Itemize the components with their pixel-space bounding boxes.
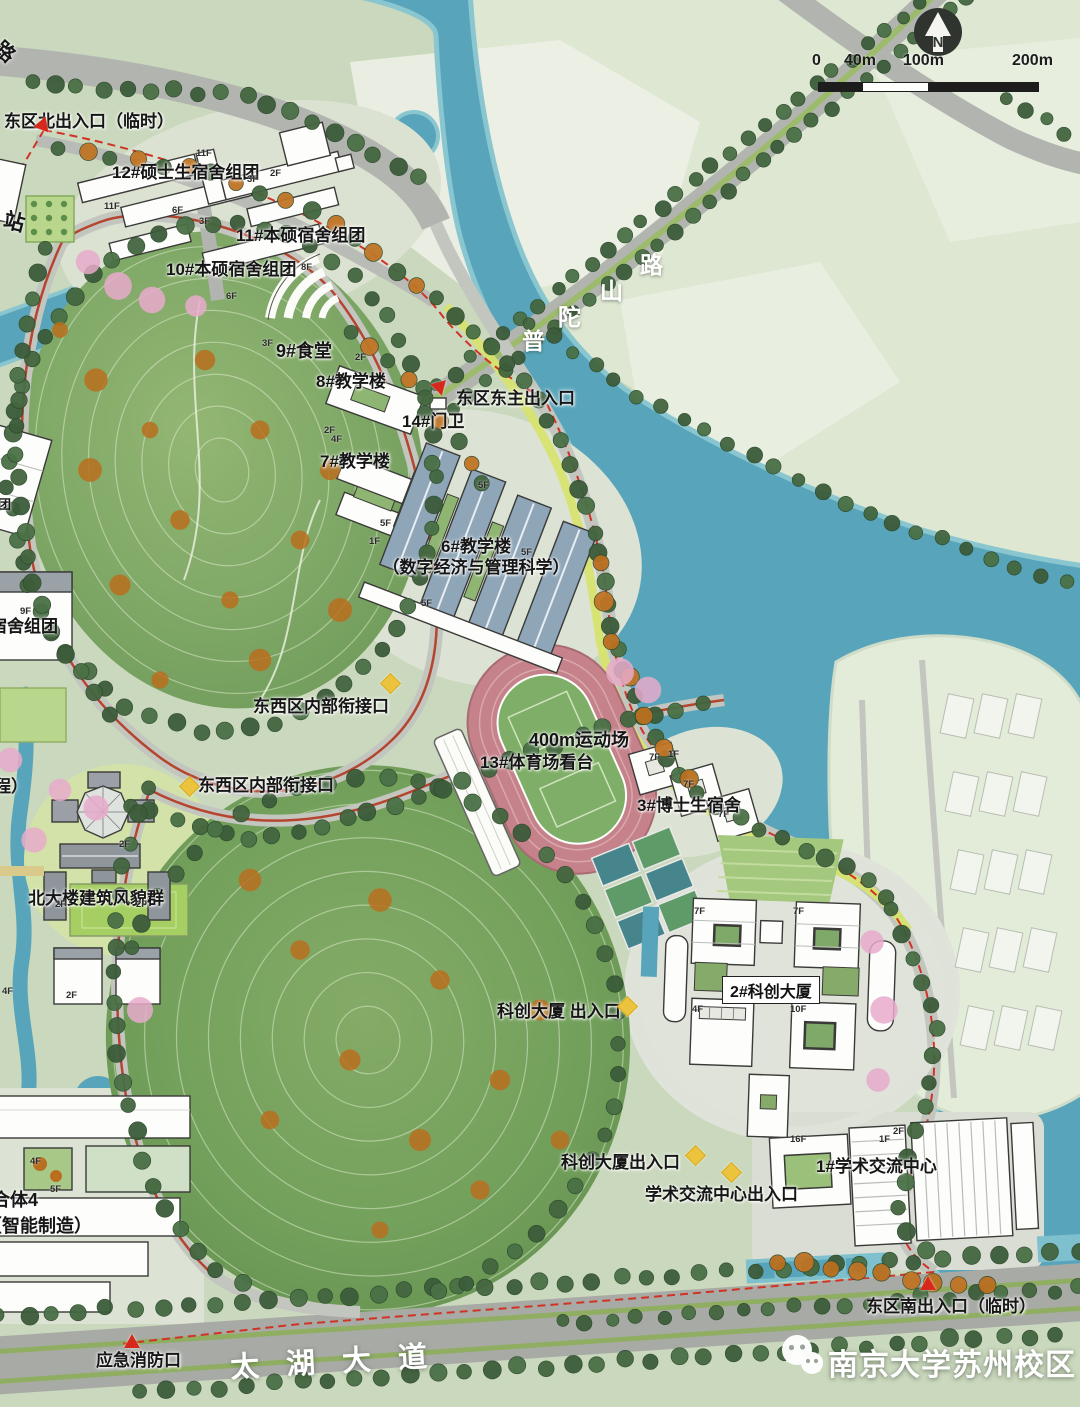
fire-exit-triangle-icon: [124, 1334, 140, 1348]
wechat-icon: [778, 1332, 826, 1380]
fire-exit-label: 应急消防口: [96, 1346, 181, 1371]
label-dorm12: 12#硕士生宿舍组团: [112, 158, 259, 183]
label-canteen9: 9#食堂: [276, 337, 332, 363]
floor-tag: 6F: [226, 291, 237, 302]
label-teaching6-line1: 6#教学楼: [356, 536, 596, 557]
floor-tag: 1F: [879, 1134, 890, 1145]
floor-tag: 5F: [478, 480, 489, 491]
connector-a-label: 东西区内部衔接口: [253, 692, 389, 717]
floor-tag: 2F: [119, 839, 130, 850]
campus-master-plan-map: 东区北出入口（临时） 12#硕士生宿舍组团 11#本硕宿舍组团 10#本硕宿舍组…: [0, 0, 1080, 1407]
taihu-road-label: 太湖大道: [229, 1332, 455, 1386]
entrance-east-main-label: 东区东主出入口: [456, 384, 575, 409]
floor-tag: 10F: [790, 1004, 806, 1015]
entrance-north-label: 东区北出入口（临时）: [4, 107, 174, 132]
label-stand13: 13#体育场看台: [480, 748, 593, 773]
putuo-road-label-char: 路: [640, 246, 663, 280]
entrance-kechuang-b-diamond-icon: [685, 1145, 706, 1166]
partial-cheng-label: 程）: [0, 772, 28, 797]
entrance-south-label: 东区南出入口（临时）: [866, 1292, 1036, 1317]
entrance-east-main-triangle-icon: [430, 380, 449, 398]
label-teaching6-line2: （数字经济与管理科学）: [356, 557, 596, 578]
putuo-road-label-char: 山: [600, 272, 623, 306]
floor-tag: 8F: [301, 262, 312, 273]
label-gate14: 14#门卫: [402, 407, 464, 432]
floor-tag: 7F: [793, 906, 804, 917]
partial-tuan-label: 团: [0, 494, 11, 513]
scale-tick-200: 200m: [1012, 52, 1053, 70]
label-teaching7: 7#教学楼: [320, 447, 390, 472]
campus-watermark-label: 南京大学苏州校区: [828, 1340, 1076, 1384]
floor-tag: 2F: [270, 168, 281, 179]
connector-b-label: 东西区内部衔接口: [198, 771, 334, 796]
floor-tag: 5F: [421, 598, 432, 609]
entrance-kechuang-a-label: 科创大厦 出入口: [497, 997, 621, 1022]
floor-tag: 6F: [172, 205, 183, 216]
scale-bar-segments: [818, 82, 1039, 92]
floor-tag: 5F: [380, 518, 391, 529]
floor-tag: 2F: [355, 352, 366, 363]
floor-tag: 11F: [196, 148, 212, 159]
scale-tick-40: 40m: [844, 52, 876, 70]
floor-tag: 7F: [649, 752, 660, 763]
floor-tag: 11F: [104, 201, 120, 212]
floor-tag: 3F: [262, 338, 273, 349]
partial-heti4-label: 合体4: [0, 1186, 38, 1212]
entrance-kechuang-b-label: 科创大厦出入口: [561, 1148, 680, 1173]
putuo-road-label-char: 普: [522, 322, 545, 356]
north-compass: N: [912, 6, 964, 58]
floor-tag: 1F: [668, 749, 679, 760]
floor-tag: 4F: [692, 1004, 703, 1015]
floor-tag: 5F: [521, 547, 532, 558]
floor-tag: 3F: [247, 174, 258, 185]
floor-tag: 5F: [50, 1184, 61, 1195]
floor-tag: 1F: [369, 536, 380, 547]
floor-tag: 7F: [718, 809, 729, 820]
entrance-xueshu-label: 学术交流中心出入口: [645, 1180, 798, 1205]
label-center1: 1#学术交流中心: [816, 1152, 937, 1177]
floor-tag: 7F: [683, 779, 694, 790]
scale-tick-0: 0: [812, 52, 821, 70]
compass-n-letter: N: [912, 34, 964, 51]
floor-tag: 4F: [331, 434, 342, 445]
label-teaching8: 8#教学楼: [316, 367, 386, 392]
floor-tag: 4F: [30, 1156, 41, 1167]
label-overlay: 东区北出入口（临时） 12#硕士生宿舍组团 11#本硕宿舍组团 10#本硕宿舍组…: [0, 0, 1080, 1407]
partial-heti4-sub-label: （智能制造）: [0, 1212, 92, 1238]
putuo-road-label-char: 陀: [558, 298, 581, 332]
partial-station-label: 站: [1, 204, 29, 238]
floor-tag: 2F: [55, 899, 66, 910]
floor-tag: 3F: [199, 216, 210, 227]
floor-tag: 2F: [66, 990, 77, 1001]
label-dorm11: 11#本硕宿舍组团: [236, 221, 365, 246]
scale-bar: 0 40m 100m 200m: [800, 52, 1080, 98]
floor-tag: 7F: [694, 906, 705, 917]
floor-tag: 2F: [136, 899, 147, 910]
connector-b-diamond-icon: [179, 776, 200, 797]
partial-road-char: 路: [0, 33, 23, 68]
label-dorm10: 10#本硕宿舍组团: [166, 255, 296, 280]
connector-a-diamond-icon: [380, 673, 401, 694]
floor-tag: 16F: [790, 1134, 806, 1145]
scale-tick-100: 100m: [903, 52, 944, 70]
floor-tag: 9F: [20, 606, 31, 617]
label-tower2: 2#科创大厦: [722, 976, 820, 1004]
floor-tag: 4F: [2, 986, 13, 997]
entrance-south-triangle-icon: [920, 1276, 936, 1290]
floor-tag: 2F: [893, 1126, 904, 1137]
label-teaching6: 6#教学楼 （数字经济与管理科学）: [356, 536, 596, 578]
